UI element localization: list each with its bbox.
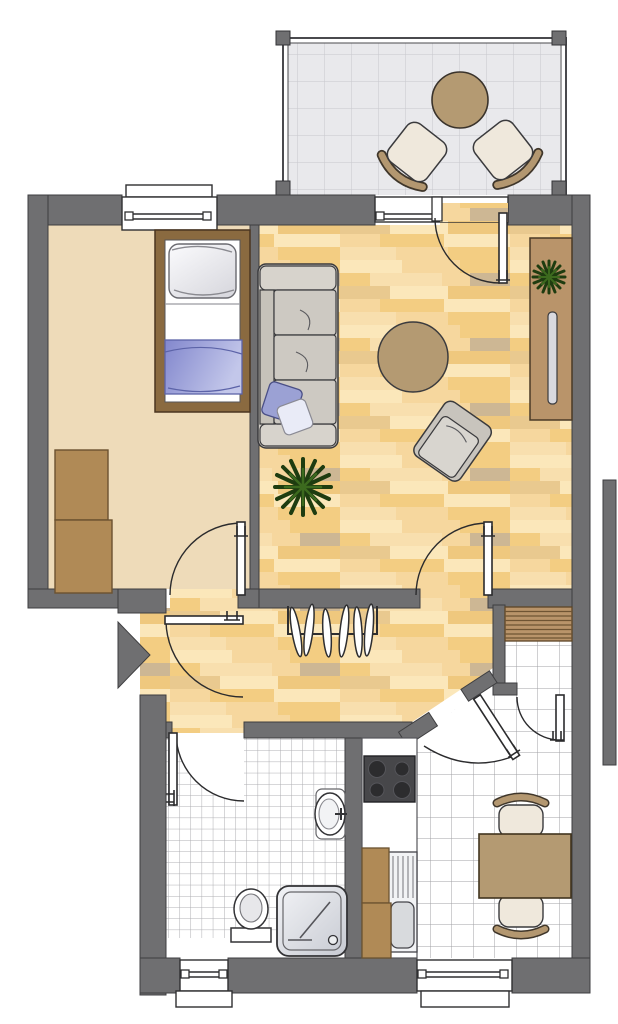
sofa-armrest-top [260, 266, 336, 290]
wall-niche-foot [493, 683, 517, 695]
kitchen-sink [388, 852, 417, 952]
round-rug [378, 322, 448, 392]
floor-plan [0, 0, 618, 1024]
bedroom-window [122, 185, 217, 230]
toilet [231, 889, 271, 942]
wall-bottom-left [140, 958, 180, 993]
balcony [276, 31, 566, 195]
wall-bath-top [244, 722, 412, 738]
kitchen-window [417, 960, 512, 1007]
wall-bottom-right [512, 958, 590, 993]
shower-drain [329, 936, 338, 945]
bedroom-door-threshold [170, 589, 238, 608]
balcony-table [432, 72, 488, 128]
wall-top-mid [217, 195, 375, 225]
burner [394, 782, 411, 799]
shelf-lines [505, 612, 572, 639]
bathroom-window [176, 960, 232, 1007]
wall-hall-living-left [259, 589, 420, 608]
burner [395, 762, 409, 776]
wall-entry-stub [118, 589, 166, 613]
wall-left-lower [140, 695, 166, 995]
tv [548, 312, 557, 404]
sideboard [530, 238, 572, 420]
burner [370, 783, 384, 797]
wall-left [28, 195, 48, 608]
living-door-threshold [420, 589, 488, 608]
sofa [258, 264, 338, 448]
sink-basin [391, 902, 414, 948]
balcony-window [375, 197, 508, 222]
kitchen-cabinets [362, 848, 391, 958]
bed [155, 230, 250, 412]
burner [369, 761, 386, 778]
washbasin [315, 789, 347, 839]
storage-shelves [505, 607, 572, 641]
sideboard-plant [533, 261, 565, 293]
floor-plant [275, 459, 331, 515]
wall-bottom-mid [228, 958, 417, 993]
bed-blanket [165, 340, 242, 394]
stove [364, 756, 415, 802]
bed-pillow [169, 244, 236, 298]
dining-table [479, 834, 571, 898]
wall-neighbor-strip [603, 480, 616, 765]
wardrobe [55, 450, 112, 593]
shower [277, 886, 347, 956]
wall-right [572, 195, 590, 993]
